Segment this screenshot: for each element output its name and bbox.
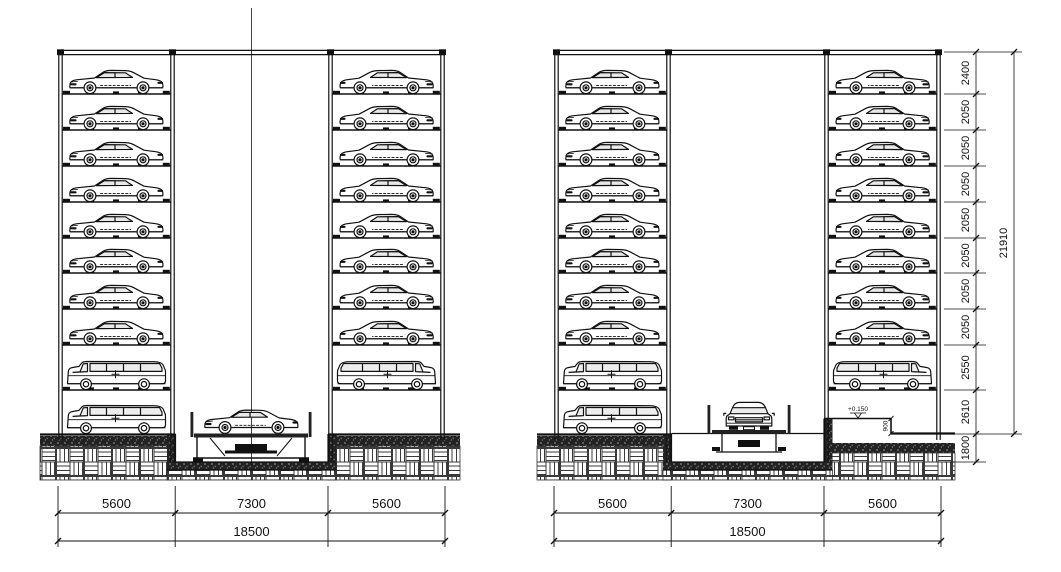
dim-label: 5600 [598, 496, 627, 511]
level-dim-label: 2050 [960, 172, 972, 196]
level-dim-label: 1800 [960, 436, 972, 460]
sedan-icon [566, 178, 659, 201]
sedan-icon [70, 249, 163, 272]
van-icon [68, 406, 166, 434]
structure-right-section [553, 49, 942, 462]
dim-label: 5600 [102, 496, 131, 511]
dim-label: 5600 [372, 496, 401, 511]
left-view-bottom-dims: 5600 7300 5600 18500 [55, 486, 448, 547]
sedan-icon [836, 70, 929, 93]
ground-hatch [824, 453, 955, 480]
sedan-icon [70, 106, 163, 129]
right-view-lift [708, 402, 791, 452]
lift-guide-post [309, 412, 312, 437]
level-marker-annotation: +0.150 [848, 406, 868, 418]
sedan-icon [836, 178, 929, 201]
sedan-icon [836, 321, 929, 344]
sedan-icon [566, 249, 659, 272]
sedan-icon [70, 70, 163, 93]
sedan-icon [340, 285, 433, 308]
van-icon [338, 362, 436, 390]
pit-floor [663, 462, 833, 470]
sedan-icon [836, 142, 929, 165]
sedan-icon [836, 249, 929, 272]
lift-platform [194, 434, 308, 438]
level-dim-label: 2050 [960, 279, 972, 303]
sedan-icon [340, 321, 433, 344]
dim-label: 5600 [868, 496, 897, 511]
edge-dim-label: 900 [883, 420, 890, 431]
ground-hatch [40, 446, 176, 480]
sedan-icon [340, 142, 433, 165]
sedan-icon [340, 249, 433, 272]
sedan-icon [340, 106, 433, 129]
sedan-icon [566, 106, 659, 129]
sedan-icon [70, 285, 163, 308]
sedan-icon [566, 70, 659, 93]
lift-guide-post [191, 412, 194, 437]
sedan-icon [70, 321, 163, 344]
lift-guide-post [788, 405, 791, 434]
level-dim-label: 2050 [960, 243, 972, 267]
generated-structure: 2400205020502050205020502050205025502610… [57, 49, 1022, 465]
drawing-svg: 2400205020502050205020502050205025502610… [0, 0, 1061, 572]
van-icon [68, 362, 166, 390]
left-view-lift [191, 410, 312, 462]
car-front-on-lift-icon [724, 402, 774, 429]
sedan-icon [566, 142, 659, 165]
sedan-icon [70, 178, 163, 201]
sedan-icon [836, 106, 929, 129]
dim-label: 7300 [237, 496, 266, 511]
dim-label-total: 18500 [729, 524, 765, 539]
lift-guide-post [708, 405, 711, 434]
left-view-ground [40, 434, 460, 480]
level-dim-label: 2050 [960, 136, 972, 160]
lift-platform [712, 430, 786, 434]
van-icon [564, 406, 662, 434]
level-dim-label: 2400 [960, 61, 972, 85]
van-icon [834, 362, 932, 390]
dim-label: 7300 [733, 496, 762, 511]
van-icon [564, 362, 662, 390]
sedan-icon [70, 142, 163, 165]
sedan-icon [836, 285, 929, 308]
sedan-icon [836, 214, 929, 237]
sedan-icon [340, 70, 433, 93]
sedan-icon [566, 214, 659, 237]
level-dim-label: 2050 [960, 315, 972, 339]
level-marker-label: +0.150 [848, 406, 868, 413]
level-dim-label: 2610 [960, 400, 972, 424]
level-dim-label: 2550 [960, 355, 972, 379]
level-marker-icon [850, 413, 866, 418]
parking-tower-section-drawing: 2400205020502050205020502050205025502610… [0, 0, 1061, 572]
dim-label-total: 18500 [233, 524, 269, 539]
ground-hatch [328, 446, 460, 480]
total-height-label: 21910 [998, 228, 1010, 259]
sedan-icon [566, 321, 659, 344]
ground-hatch [537, 446, 672, 480]
sedan-icon [566, 285, 659, 308]
entry-slab-edge [824, 419, 891, 434]
sedan-icon [70, 214, 163, 237]
right-view-bottom-dims: 5600 7300 5600 18500 [551, 486, 944, 547]
level-dim-label: 2050 [960, 208, 972, 232]
right-view-level-dims: 2400205020502050205020502050205025502610… [944, 49, 1022, 465]
sedan-icon [340, 178, 433, 201]
level-dim-label: 2050 [960, 100, 972, 124]
sedan-icon [340, 214, 433, 237]
